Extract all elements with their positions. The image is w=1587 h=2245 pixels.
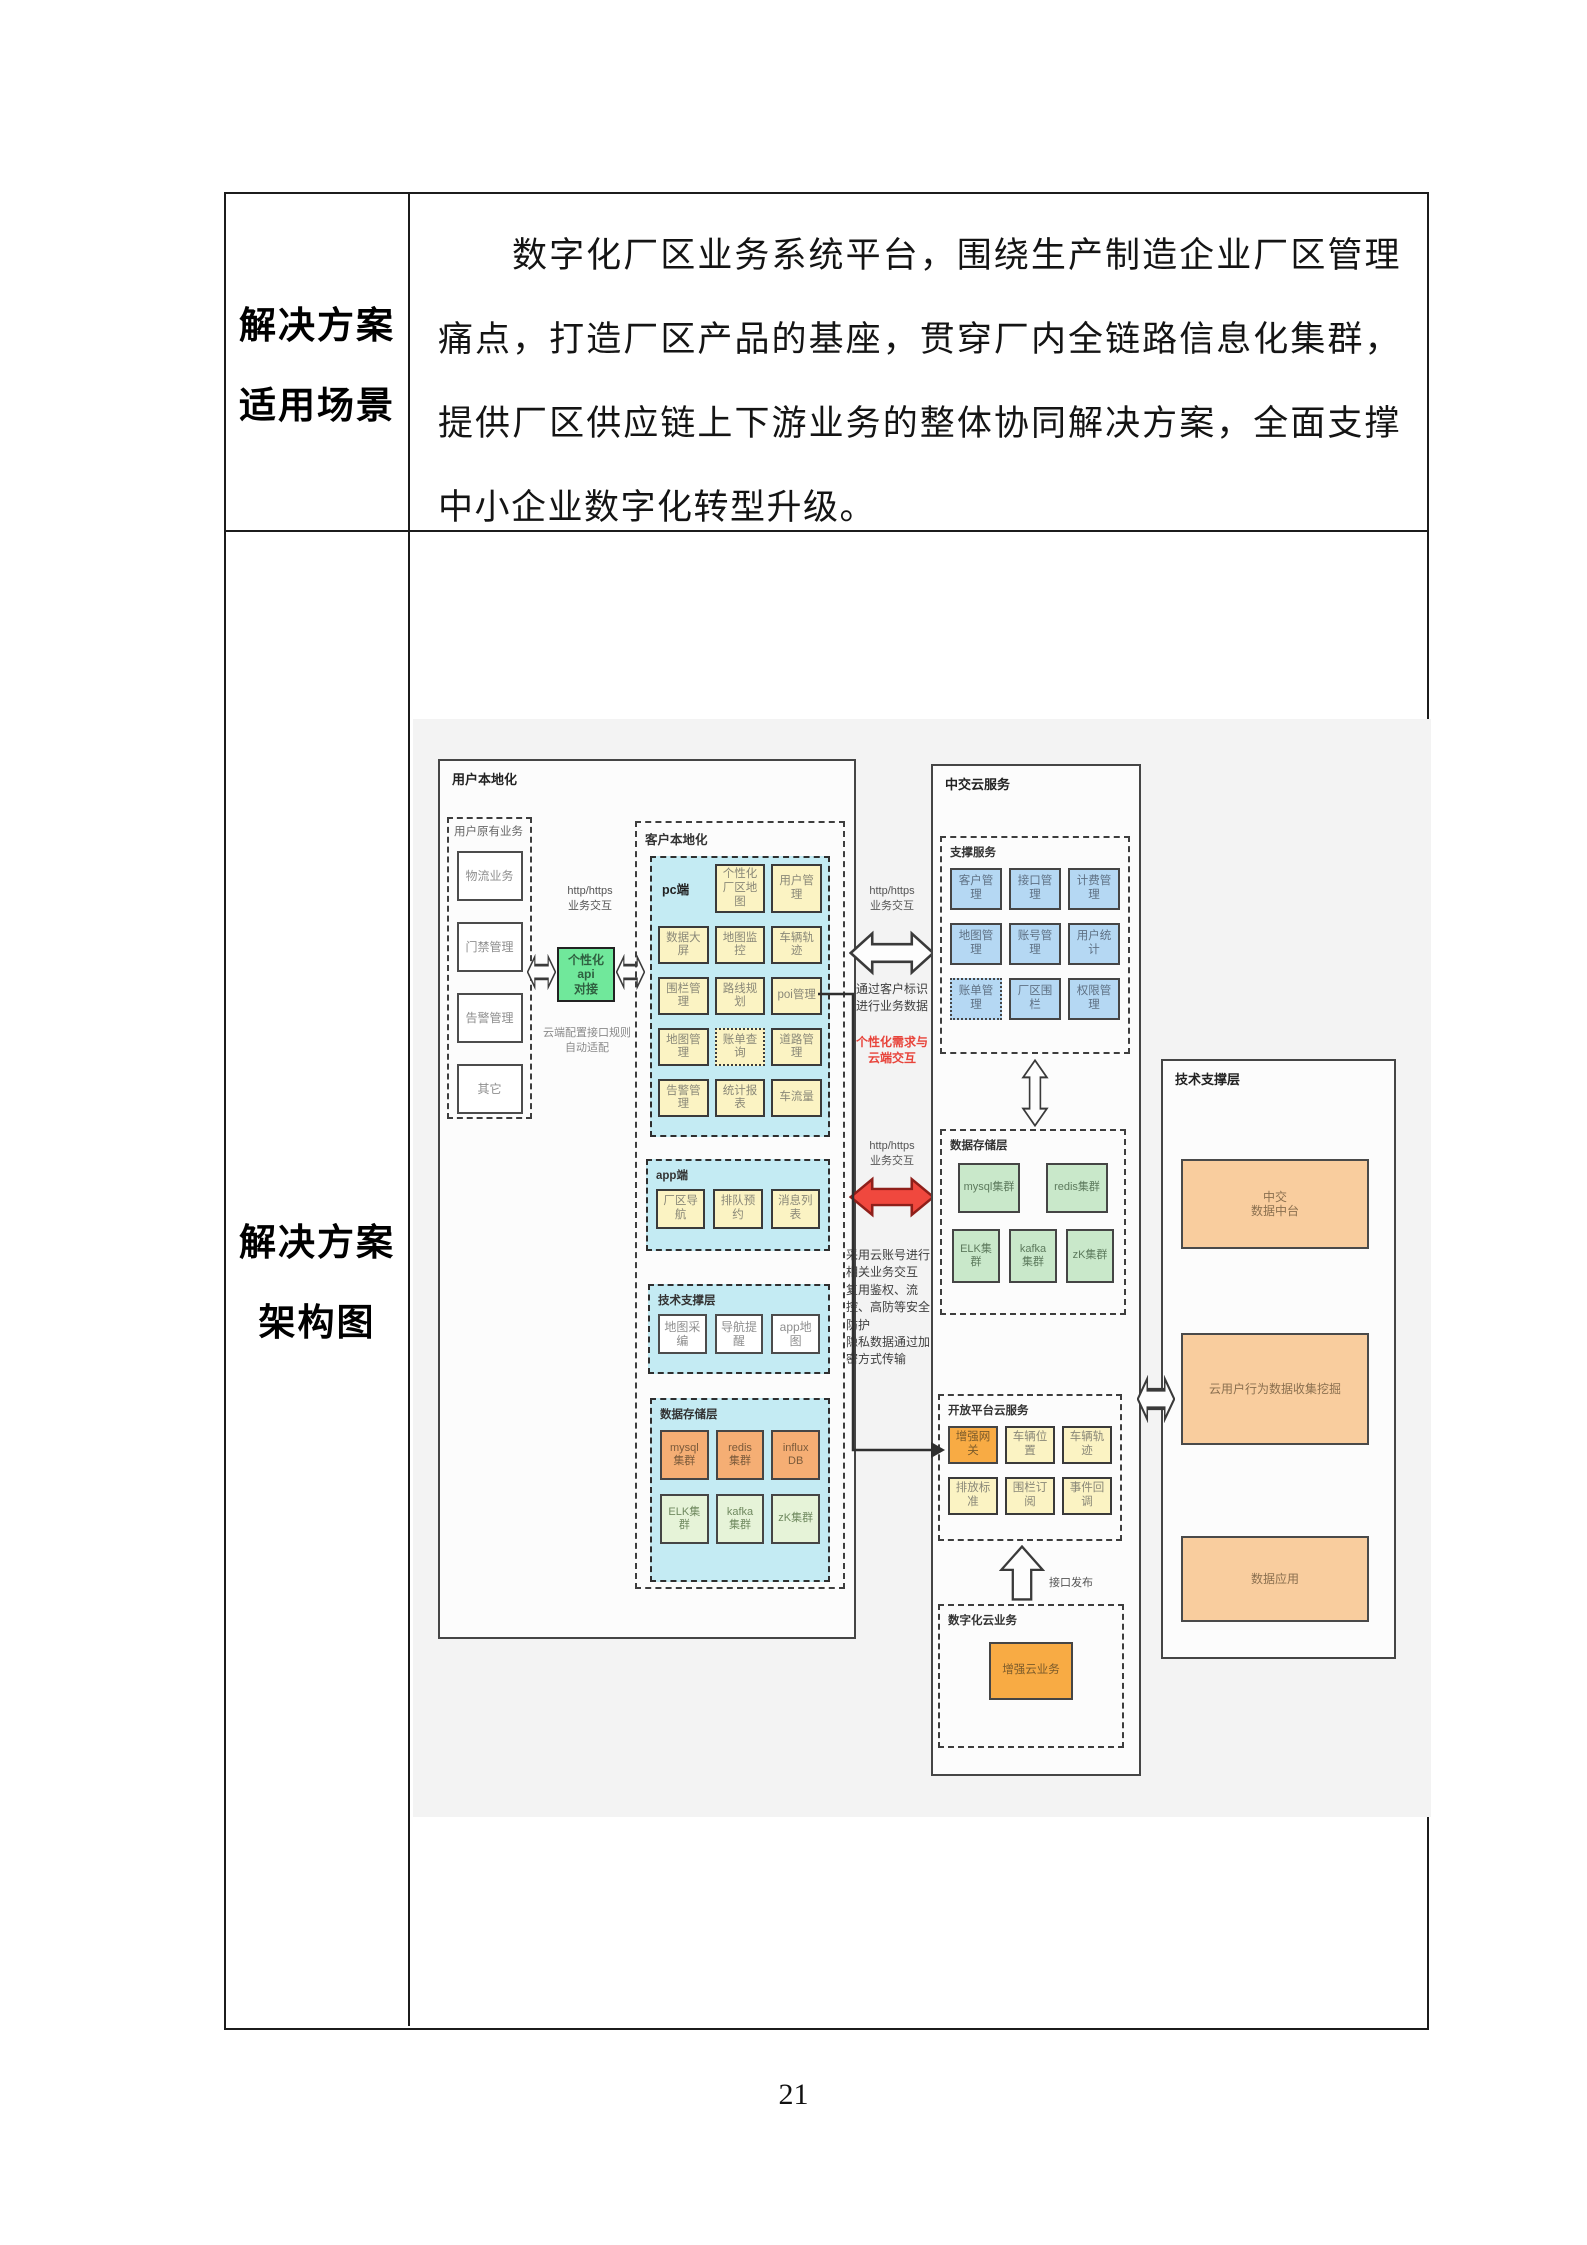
legacy-services-list: 物流业务 门禁管理 告警管理 其它 — [449, 851, 530, 1114]
pc-item-box: 个性化厂区地图 — [715, 864, 766, 913]
tech-item-box: 地图采编 — [658, 1314, 707, 1354]
publish-label: 接口发布 — [1049, 1576, 1109, 1591]
pc-item-box: 车辆轨迹 — [771, 926, 822, 964]
support-item-box: 地图管理 — [950, 923, 1002, 965]
local-tech-section: 技术支撑层 地图采编 导航提醒 app地图 — [648, 1284, 830, 1374]
tech-support-panel: 技术支撑层 中交 数据中台 云用户行为数据收集挖掘 数据应用 — [1161, 1059, 1396, 1659]
user-localization-panel: 用户本地化 用户原有业务 物流业务 门禁管理 告警管理 其它 — [438, 759, 856, 1639]
pc-item-box: 路线规划 — [715, 977, 766, 1015]
client-localization-group: 客户本地化 pc端 个性化厂区地图 用户管理 数据大屏 地图监控 车辆轨迹 — [635, 821, 845, 1589]
user-localization-title: 用户本地化 — [452, 769, 517, 788]
support-item-box-dotted: 账单管理 — [950, 978, 1002, 1020]
support-item-box: 用户统计 — [1068, 923, 1120, 965]
app-item-box: 排队预约 — [713, 1189, 762, 1229]
storage-item-box: zK集群 — [771, 1494, 820, 1544]
local-tech-title: 技术支撑层 — [658, 1292, 828, 1308]
pc-item-box: 告警管理 — [658, 1079, 709, 1117]
enhanced-cloud-box: 增强云业务 — [989, 1642, 1073, 1700]
support-services-grid: 客户管理 接口管理 计费管理 地图管理 账号管理 用户统计 账单管理 厂区围栏 … — [950, 868, 1120, 1020]
architecture-content-cell: 用户本地化 用户原有业务 物流业务 门禁管理 告警管理 其它 — [410, 532, 1427, 2026]
support-item-box: 计费管理 — [1068, 868, 1120, 910]
scenario-paragraph: 数字化厂区业务系统平台，围绕生产制造企业厂区管理痛点，打造厂区产品的基座，贯穿厂… — [410, 194, 1427, 550]
support-item-box: 客户管理 — [950, 868, 1002, 910]
app-item-box: 厂区导航 — [656, 1189, 705, 1229]
middle-caption-bottom: 采用云账号进行 相关业务交互 复用鉴权、流 控、高防等安全 防护 隐私数据通过加… — [846, 1247, 938, 1369]
scenario-label-line1: 解决方案 — [239, 295, 395, 349]
tech-item-box: 导航提醒 — [715, 1314, 764, 1354]
open-platform-group: 开放平台云服务 增强网关 车辆位置 车辆轨迹 排放标准 围栏订阅 事件回调 — [938, 1394, 1122, 1541]
cloud-storage-group: 数据存储层 mysql集群 redis集群 ELK集 群 kafka 集群 zK… — [940, 1129, 1126, 1315]
pc-grid: pc端 个性化厂区地图 用户管理 数据大屏 地图监控 车辆轨迹 围栏管理 路线规… — [658, 864, 822, 1117]
pc-section-title: pc端 — [658, 879, 709, 898]
open-item-box: 车辆位置 — [1005, 1426, 1055, 1464]
storage-item-box: ELK集 群 — [660, 1494, 709, 1544]
architecture-label-line2: 架构图 — [259, 1292, 376, 1346]
pc-item-box: poi管理 — [771, 977, 822, 1015]
tech-item-box: app地图 — [771, 1314, 820, 1354]
tech-support-box: 中交 数据中台 — [1181, 1159, 1369, 1249]
pc-item-box: 车流量 — [771, 1079, 822, 1117]
storage-item-box: influx DB — [771, 1430, 820, 1480]
legacy-item: 物流业务 — [457, 851, 523, 901]
cloud-storage-row1: mysql集群 redis集群 — [958, 1163, 1108, 1213]
pc-item-box: 围栏管理 — [658, 977, 709, 1015]
document-page: 解决方案 适用场景 数字化厂区业务系统平台，围绕生产制造企业厂区管理痛点，打造厂… — [0, 0, 1587, 2245]
legacy-item: 门禁管理 — [457, 922, 523, 972]
red-double-arrow-icon — [849, 1176, 935, 1218]
page-number: 21 — [0, 2078, 1587, 2112]
app-items: 厂区导航 排队预约 消息列表 — [656, 1189, 820, 1229]
cloud-storage-box: zK集群 — [1066, 1229, 1114, 1283]
middle-http-note-bottom: http/https 业务交互 — [853, 1139, 931, 1169]
app-section-title: app端 — [656, 1167, 828, 1183]
double-arrow-icon — [1137, 1375, 1175, 1423]
api-http-note: http/https 业务交互 — [550, 884, 630, 914]
pc-item-box: 数据大屏 — [658, 926, 709, 964]
digital-cloud-title: 数字化云业务 — [948, 1612, 1122, 1628]
storage-item-box: mysql 集群 — [660, 1430, 709, 1480]
table-row-architecture: 解决方案 架构图 用户本地化 用户原有业务 物流业务 门禁管理 — [226, 532, 1427, 2026]
tech-support-box: 云用户行为数据收集挖掘 — [1181, 1333, 1369, 1445]
legacy-item: 告警管理 — [457, 993, 523, 1043]
cloud-service-panel: 中交云服务 支撑服务 客户管理 接口管理 计费管理 地图管理 账号管理 用户统计 — [931, 764, 1141, 1776]
storage-item-box: redis 集群 — [716, 1430, 765, 1480]
local-storage-title: 数据存储层 — [660, 1406, 828, 1422]
open-platform-title: 开放平台云服务 — [948, 1402, 1120, 1418]
pc-item-box: 地图监控 — [715, 926, 766, 964]
support-item-box: 权限管理 — [1068, 978, 1120, 1020]
architecture-label-cell: 解决方案 架构图 — [226, 532, 410, 2026]
tech-support-title: 技术支撑层 — [1175, 1069, 1240, 1088]
local-tech-items: 地图采编 导航提醒 app地图 — [658, 1314, 820, 1354]
scenario-label-line2: 适用场景 — [239, 375, 395, 429]
pc-item-box: 道路管理 — [771, 1028, 822, 1066]
pc-section: pc端 个性化厂区地图 用户管理 数据大屏 地图监控 车辆轨迹 围栏管理 路线规… — [650, 856, 830, 1137]
legacy-services-group: 用户原有业务 物流业务 门禁管理 告警管理 其它 — [447, 817, 532, 1119]
table-row-scenario: 解决方案 适用场景 数字化厂区业务系统平台，围绕生产制造企业厂区管理痛点，打造厂… — [226, 194, 1427, 532]
open-platform-grid: 增强网关 车辆位置 车辆轨迹 排放标准 围栏订阅 事件回调 — [948, 1426, 1112, 1515]
solution-table: 解决方案 适用场景 数字化厂区业务系统平台，围绕生产制造企业厂区管理痛点，打造厂… — [224, 192, 1429, 2030]
legacy-services-title: 用户原有业务 — [454, 823, 530, 839]
storage-item-box: kafka 集群 — [716, 1494, 765, 1544]
middle-red-caption: 个性化需求与 云端交互 — [850, 1034, 934, 1066]
open-item-box-gateway: 增强网关 — [948, 1426, 998, 1464]
open-item-box: 事件回调 — [1062, 1477, 1112, 1515]
scenario-content-cell: 数字化厂区业务系统平台，围绕生产制造企业厂区管理痛点，打造厂区产品的基座，贯穿厂… — [410, 194, 1427, 530]
architecture-label-line1: 解决方案 — [239, 1212, 395, 1266]
cloud-storage-box: kafka 集群 — [1009, 1229, 1057, 1283]
legacy-item: 其它 — [457, 1064, 523, 1114]
app-item-box: 消息列表 — [771, 1189, 820, 1229]
personalized-api-box: 个性化api 对接 — [557, 947, 615, 1002]
support-services-title: 支撑服务 — [950, 844, 1128, 860]
double-arrow-icon — [527, 954, 556, 990]
middle-http-note-top: http/https 业务交互 — [851, 884, 933, 914]
up-arrow-icon — [999, 1545, 1045, 1601]
support-services-group: 支撑服务 客户管理 接口管理 计费管理 地图管理 账号管理 用户统计 账单管理 … — [940, 836, 1130, 1054]
double-arrow-icon — [849, 930, 935, 976]
support-item-box: 账号管理 — [1009, 923, 1061, 965]
cloud-storage-box: redis集群 — [1046, 1163, 1108, 1213]
support-item-box: 接口管理 — [1009, 868, 1061, 910]
client-localization-title: 客户本地化 — [645, 829, 843, 848]
local-storage-section: 数据存储层 mysql 集群 redis 集群 influx DB ELK集 群… — [650, 1398, 830, 1582]
cloud-storage-row2: ELK集 群 kafka 集群 zK集群 — [952, 1229, 1114, 1283]
middle-caption-top: 通过客户标识 进行业务数据 — [848, 981, 936, 1016]
api-config-note: 云端配置接口规则 自动适配 — [538, 1026, 636, 1056]
tech-support-box: 数据应用 — [1181, 1536, 1369, 1622]
pc-item-box: 地图管理 — [658, 1028, 709, 1066]
cloud-storage-box: mysql集群 — [958, 1163, 1020, 1213]
open-item-box: 围栏订阅 — [1005, 1477, 1055, 1515]
pc-item-box: 用户管理 — [771, 864, 822, 913]
open-item-box: 车辆轨迹 — [1062, 1426, 1112, 1464]
cloud-service-title: 中交云服务 — [945, 774, 1010, 793]
app-section: app端 厂区导航 排队预约 消息列表 — [646, 1159, 830, 1251]
open-item-box: 排放标准 — [948, 1477, 998, 1515]
support-item-box: 厂区围栏 — [1009, 978, 1061, 1020]
pc-item-box: 统计报表 — [715, 1079, 766, 1117]
pc-item-box-dotted: 账单查询 — [715, 1028, 766, 1066]
local-storage-grid: mysql 集群 redis 集群 influx DB ELK集 群 kafka… — [660, 1430, 820, 1544]
cloud-storage-title: 数据存储层 — [950, 1137, 1124, 1153]
architecture-diagram: 用户本地化 用户原有业务 物流业务 门禁管理 告警管理 其它 — [413, 719, 1431, 1817]
cloud-storage-box: ELK集 群 — [952, 1229, 1000, 1283]
scenario-label-cell: 解决方案 适用场景 — [226, 194, 410, 530]
vertical-double-arrow-icon — [1021, 1059, 1049, 1127]
digital-cloud-group: 数字化云业务 增强云业务 — [938, 1604, 1124, 1748]
